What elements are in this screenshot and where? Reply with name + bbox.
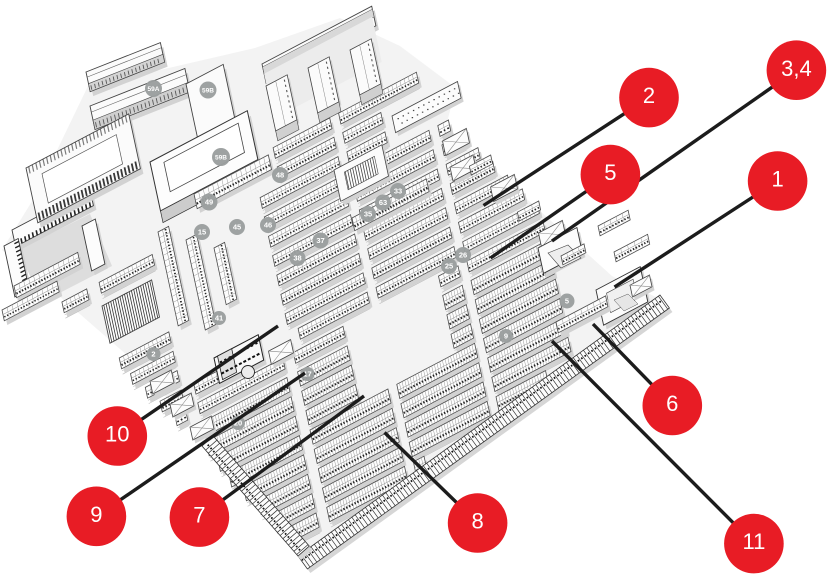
svg-text:49: 49	[205, 198, 213, 207]
svg-text:33: 33	[394, 187, 402, 196]
svg-text:45: 45	[233, 223, 241, 232]
svg-text:2: 2	[151, 350, 155, 359]
svg-text:48: 48	[276, 171, 284, 180]
svg-text:63: 63	[379, 198, 387, 207]
svg-text:46: 46	[264, 221, 272, 230]
svg-text:7: 7	[193, 503, 205, 528]
svg-text:35: 35	[364, 210, 372, 219]
svg-text:38: 38	[293, 254, 301, 263]
svg-text:9: 9	[504, 332, 508, 341]
svg-text:59B: 59B	[202, 87, 214, 94]
svg-text:8: 8	[471, 509, 483, 534]
svg-text:2: 2	[643, 83, 655, 108]
svg-text:10: 10	[105, 422, 129, 447]
svg-text:6: 6	[666, 391, 678, 416]
svg-text:5: 5	[565, 297, 569, 306]
svg-text:5: 5	[604, 160, 616, 185]
svg-text:59B: 59B	[215, 154, 227, 161]
svg-text:59A: 59A	[148, 86, 160, 93]
svg-text:15: 15	[198, 228, 206, 237]
svg-text:9: 9	[90, 502, 102, 527]
svg-text:11: 11	[742, 529, 765, 554]
svg-text:3,4: 3,4	[781, 56, 812, 81]
svg-text:41: 41	[215, 314, 223, 323]
svg-text:25: 25	[445, 262, 453, 271]
svg-text:1: 1	[771, 167, 783, 192]
svg-text:26: 26	[459, 251, 467, 260]
svg-text:37: 37	[316, 236, 324, 245]
